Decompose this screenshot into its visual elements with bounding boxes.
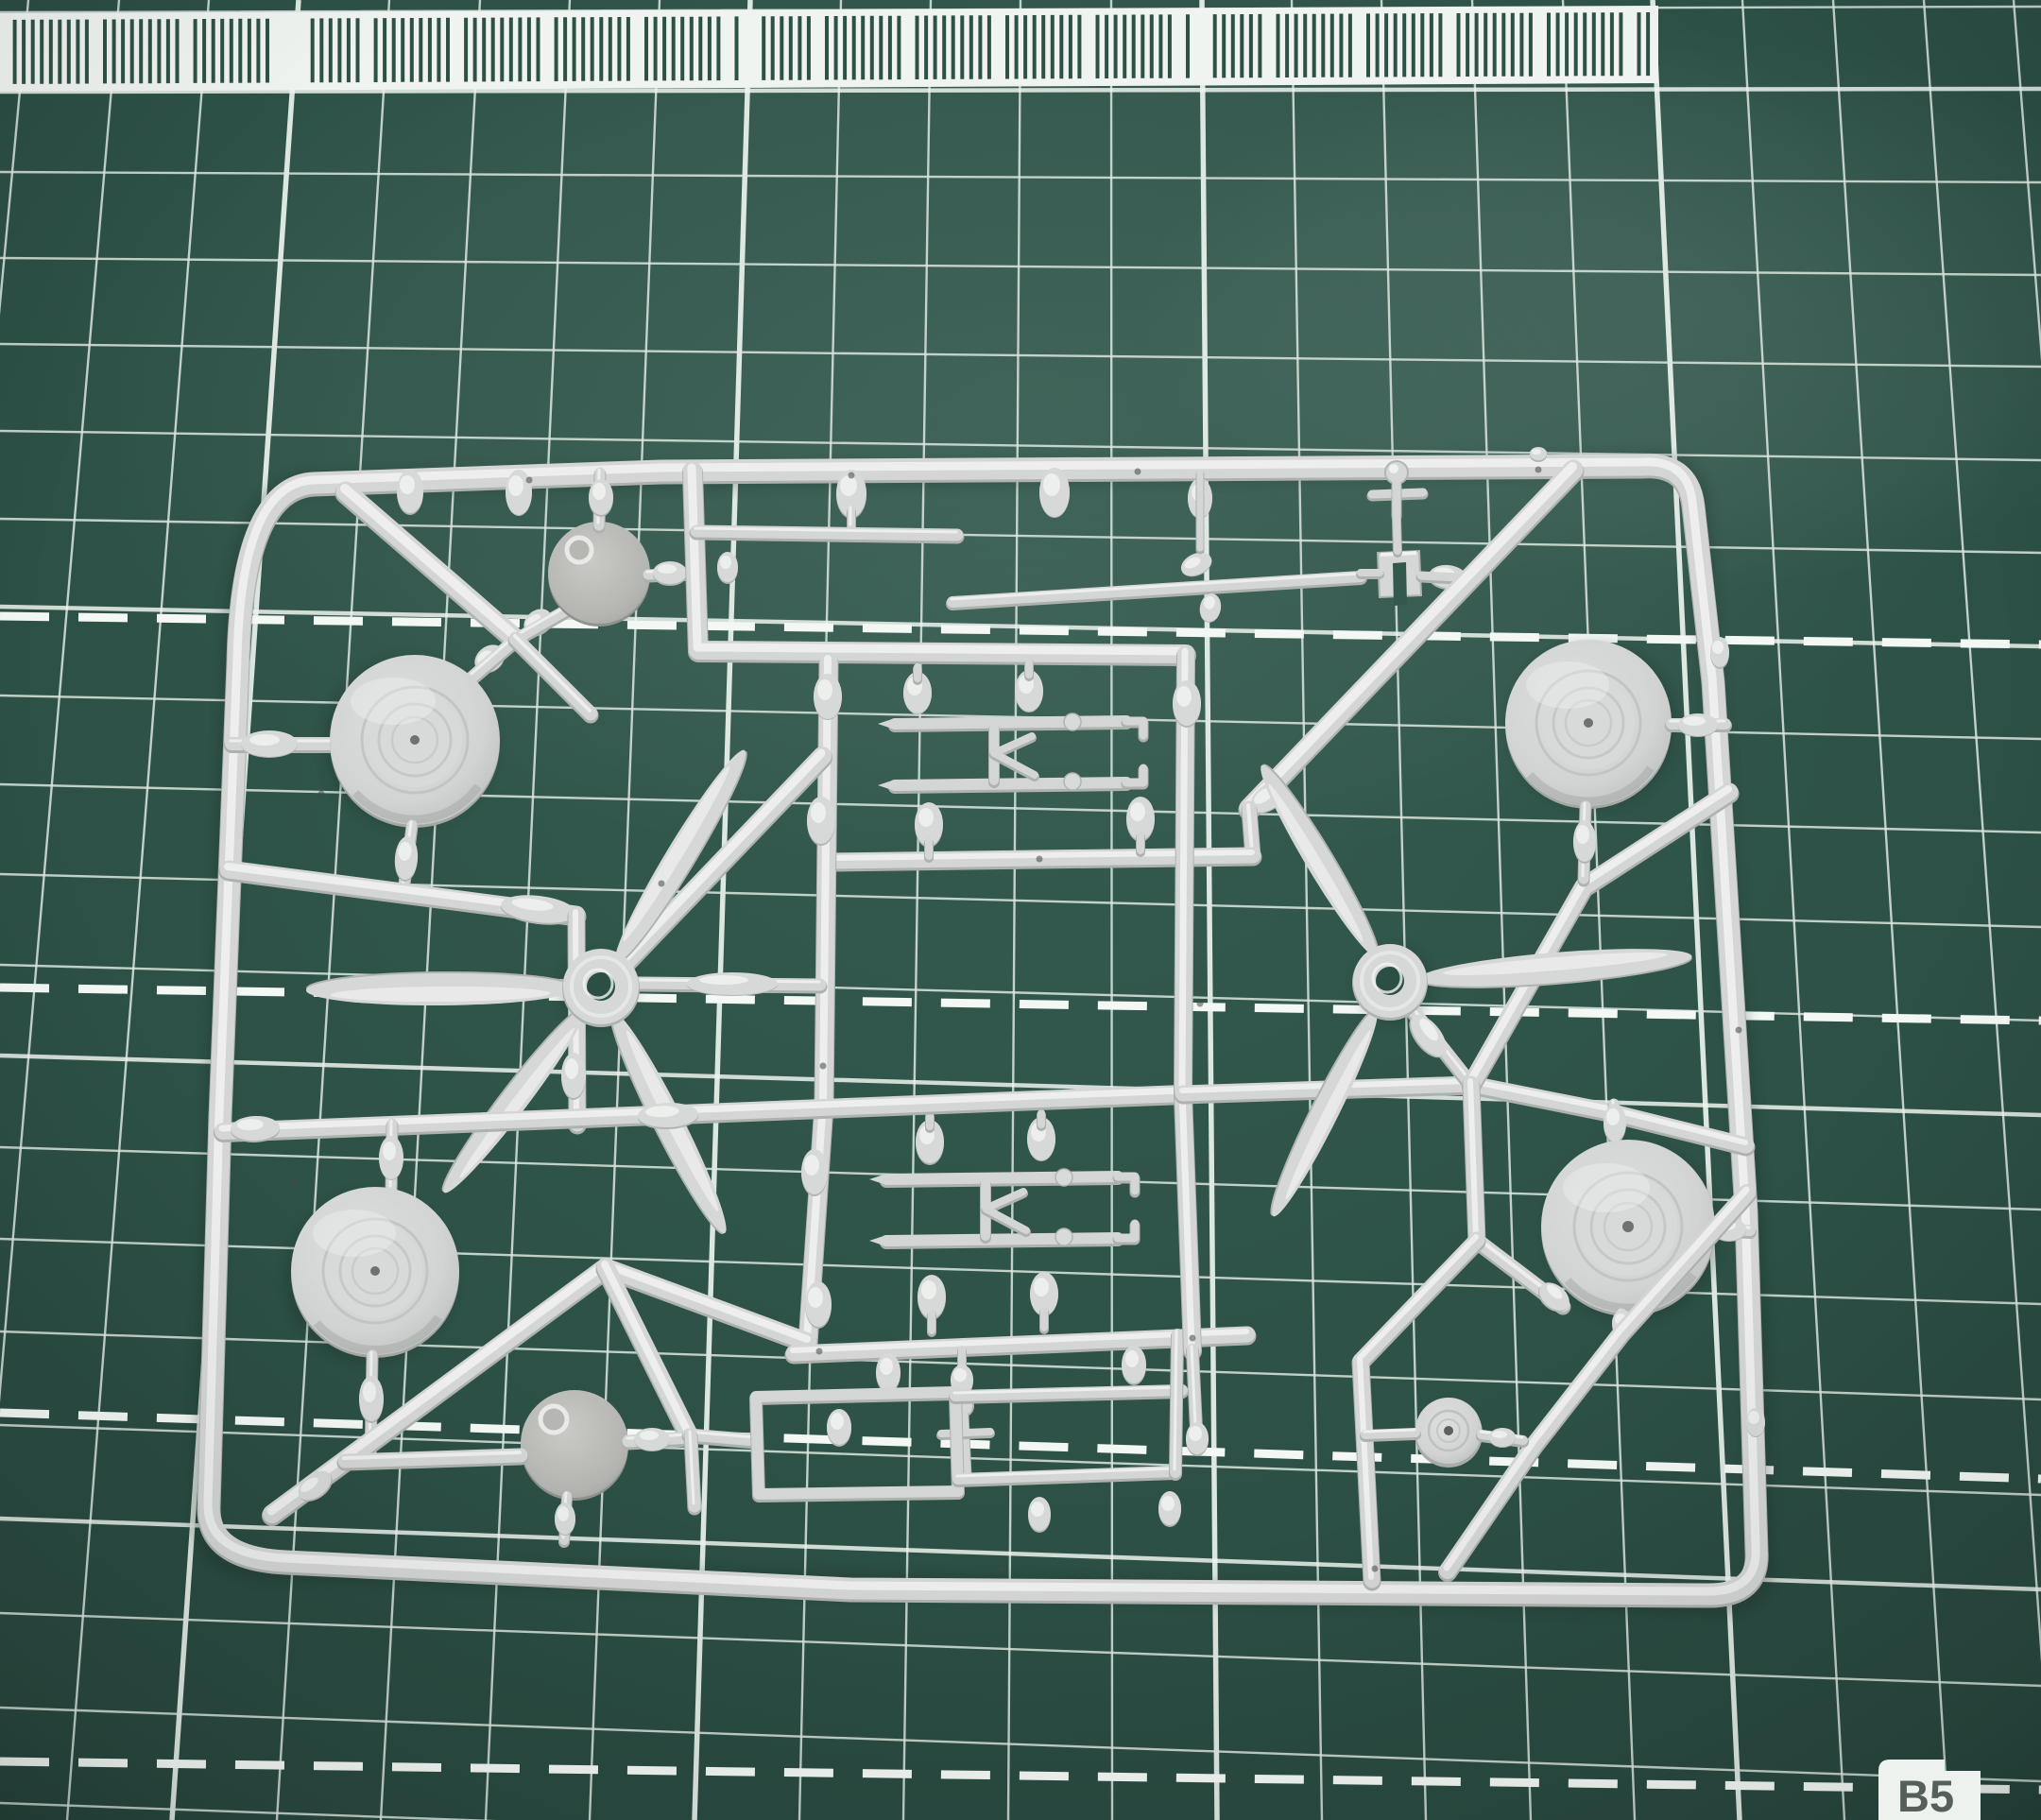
svg-text:B5: B5	[1897, 1771, 1954, 1820]
